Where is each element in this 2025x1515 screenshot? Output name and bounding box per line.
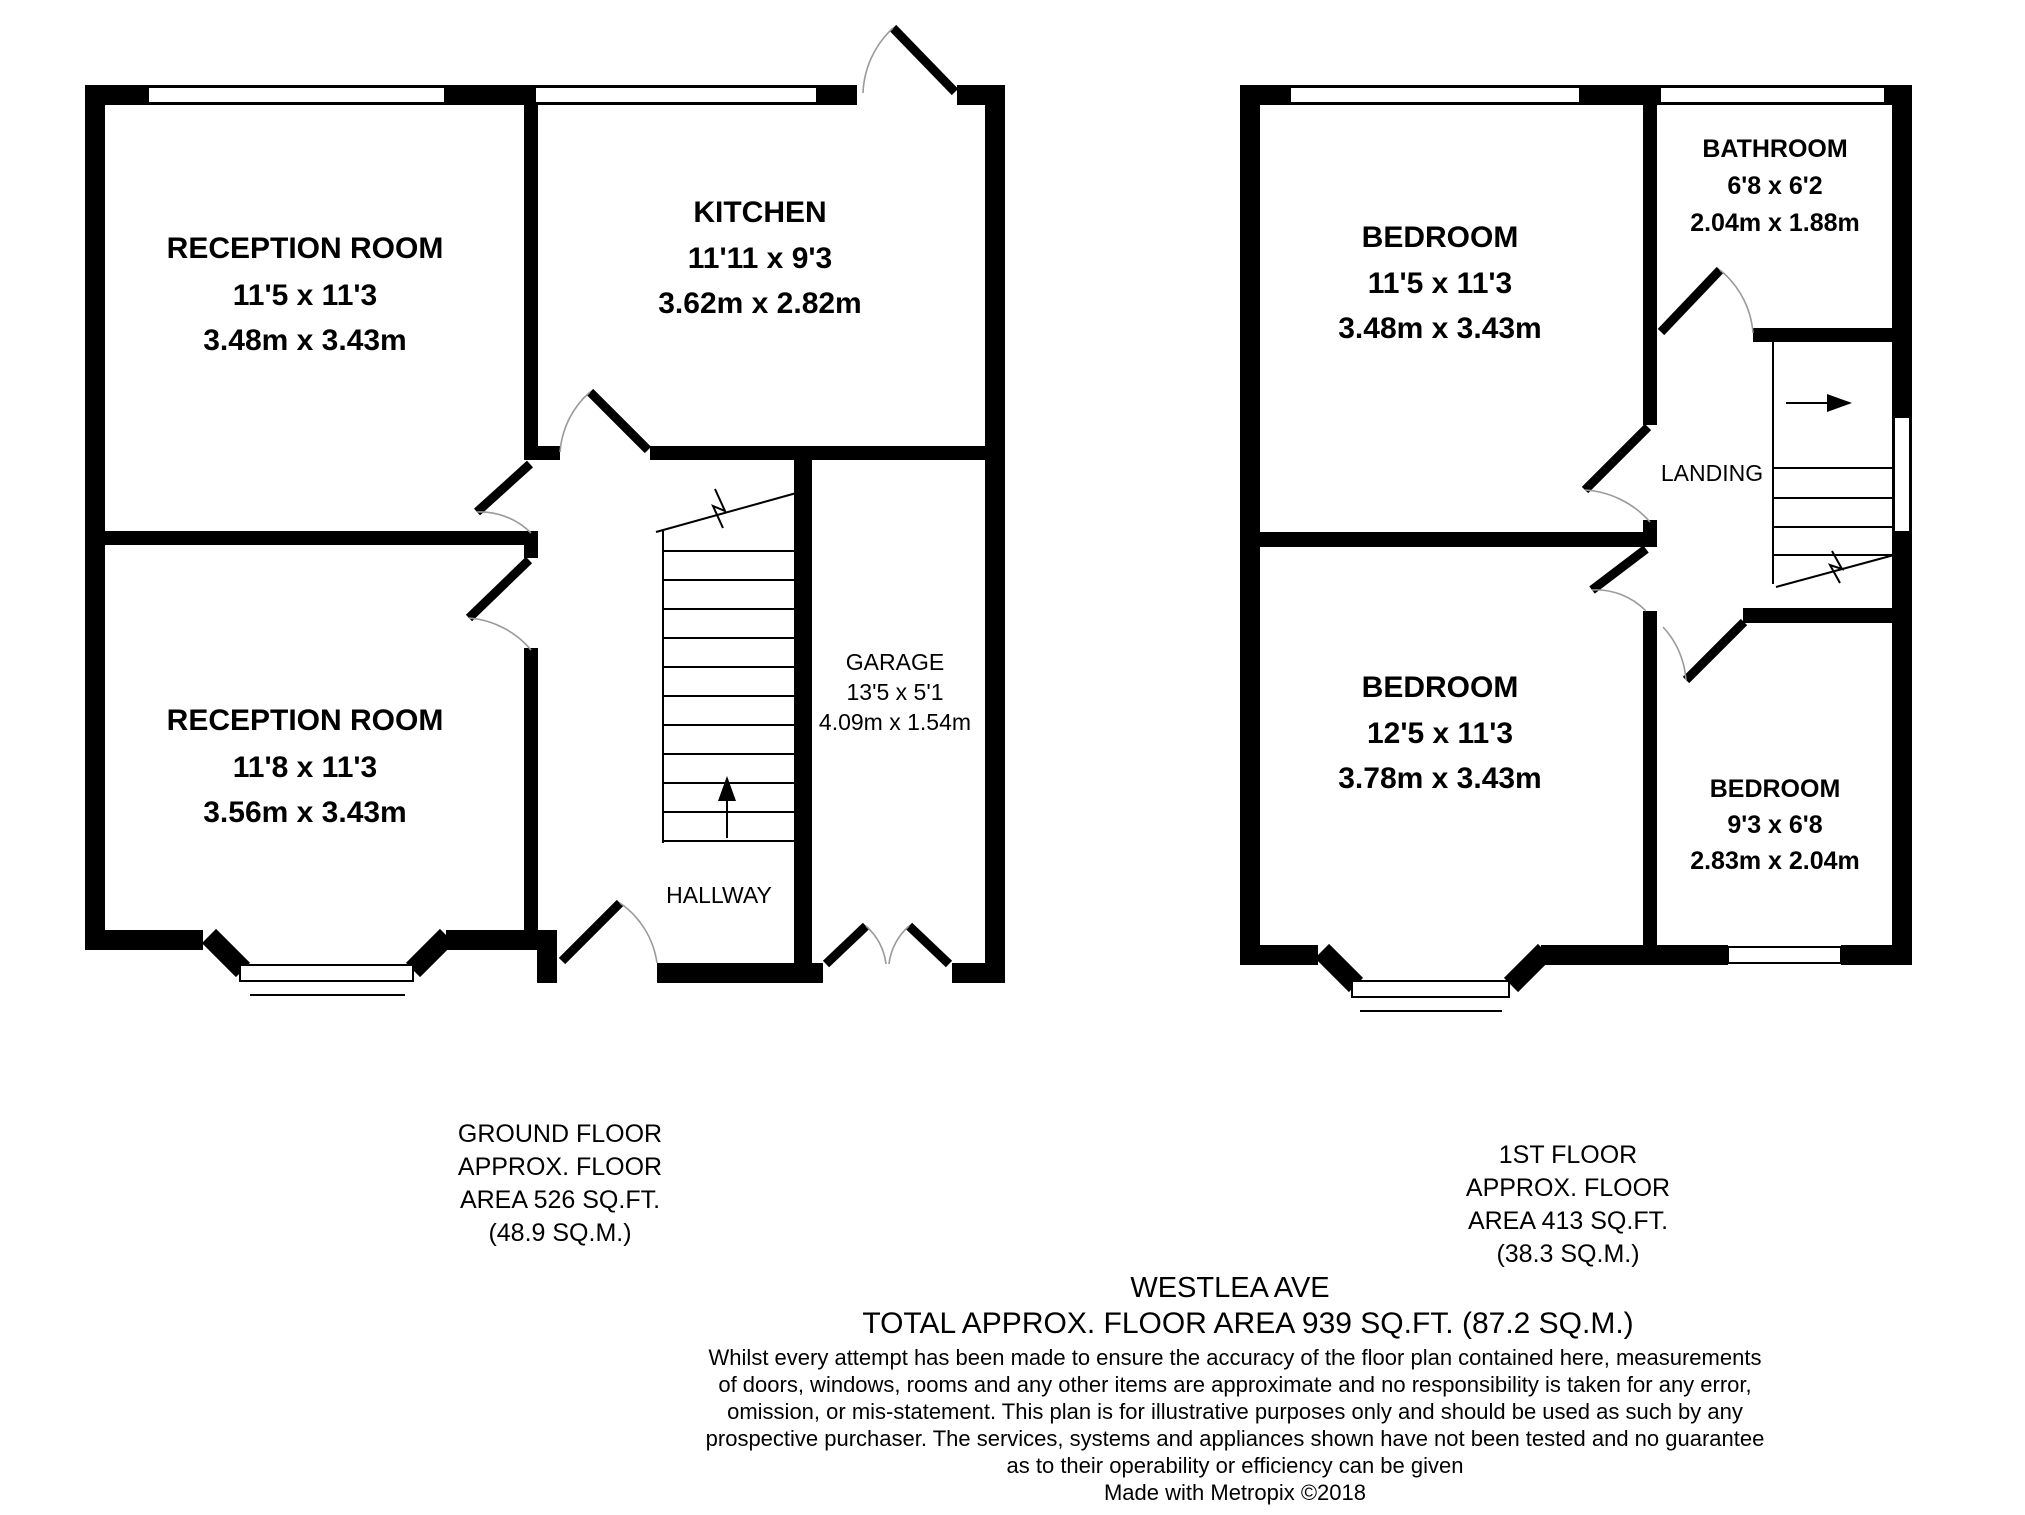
caption-line: 1ST FLOOR bbox=[1499, 1141, 1637, 1169]
room-name: BEDROOM bbox=[1362, 671, 1519, 704]
ground-floor-walls bbox=[85, 85, 1005, 983]
caption-line: AREA 413 SQ.FT. bbox=[1468, 1207, 1668, 1235]
window bbox=[535, 87, 817, 103]
garage-double-doors bbox=[826, 926, 949, 964]
room-label-landing: LANDING bbox=[1661, 460, 1763, 486]
room-label-garage: GARAGE 13'5 x 5'1 4.09m x 1.54m bbox=[819, 649, 971, 735]
room-name: BEDROOM bbox=[1710, 775, 1841, 803]
total-area-line: TOTAL APPROX. FLOOR AREA 939 SQ.FT. (87.… bbox=[862, 1307, 1633, 1340]
bedroom-2-door bbox=[1592, 549, 1646, 611]
room-name: RECEPTION ROOM bbox=[167, 704, 444, 737]
room-label-reception-1: RECEPTION ROOM 11'5 x 11'3 3.48m x 3.43m bbox=[167, 232, 444, 357]
floorplan-page: RECEPTION ROOM 11'5 x 11'3 3.48m x 3.43m… bbox=[0, 0, 2025, 1515]
kitchen-door bbox=[560, 392, 648, 452]
disclaimer-line: as to their operability or efficiency ca… bbox=[1007, 1453, 1464, 1478]
room-label-kitchen: KITCHEN 11'11 x 9'3 3.62m x 2.82m bbox=[658, 196, 861, 320]
disclaimer-line: prospective purchaser. The services, sys… bbox=[706, 1426, 1765, 1451]
stair-break-line bbox=[1776, 555, 1894, 587]
right-arrow-icon bbox=[1786, 394, 1852, 412]
bathroom-door bbox=[1661, 270, 1753, 333]
bay-window bbox=[1352, 981, 1509, 997]
room-name: RECEPTION ROOM bbox=[167, 232, 444, 265]
first-floor-stairs bbox=[1773, 342, 1894, 587]
up-arrow-icon bbox=[718, 776, 736, 838]
window bbox=[1728, 947, 1841, 963]
room-size-imperial: 11'8 x 11'3 bbox=[233, 751, 377, 784]
room-size-metric: 3.56m x 3.43m bbox=[203, 796, 406, 829]
caption-line: (48.9 SQ.M.) bbox=[488, 1219, 631, 1247]
room-size-metric: 3.48m x 3.43m bbox=[203, 324, 406, 357]
caption-line: (38.3 SQ.M.) bbox=[1496, 1240, 1639, 1268]
room-label-bedroom-1: BEDROOM 11'5 x 11'3 3.48m x 3.43m bbox=[1338, 221, 1541, 345]
room-name: BEDROOM bbox=[1362, 221, 1519, 254]
disclaimer-text: Whilst every attempt has been made to en… bbox=[706, 1345, 1765, 1505]
room-label-bedroom-2: BEDROOM 12'5 x 11'3 3.78m x 3.43m bbox=[1338, 671, 1541, 795]
ground-floor-plan: RECEPTION ROOM 11'5 x 11'3 3.48m x 3.43m… bbox=[85, 28, 1005, 995]
window bbox=[1660, 87, 1885, 103]
caption-line: AREA 526 SQ.FT. bbox=[460, 1186, 660, 1214]
room-size-imperial: 9'3 x 6'8 bbox=[1727, 811, 1822, 839]
address-title: WESTLEA AVE bbox=[1130, 1272, 1329, 1304]
room-size-metric: 3.78m x 3.43m bbox=[1338, 762, 1541, 795]
door-opening bbox=[857, 84, 957, 106]
bedroom-3-door bbox=[1663, 622, 1744, 680]
room-size-imperial: 11'11 x 9'3 bbox=[688, 242, 832, 275]
caption-line: APPROX. FLOOR bbox=[458, 1153, 662, 1181]
room-name: KITCHEN bbox=[693, 196, 826, 229]
window bbox=[1290, 87, 1580, 103]
front-door bbox=[562, 903, 657, 963]
room-label-bedroom-3: BEDROOM 9'3 x 6'8 2.83m x 2.04m bbox=[1690, 775, 1860, 875]
disclaimer-line: omission, or mis-statement. This plan is… bbox=[727, 1399, 1743, 1424]
stair-break-zigzag bbox=[713, 489, 725, 528]
bedroom-1-door bbox=[1585, 427, 1650, 522]
room-name: GARAGE bbox=[846, 649, 944, 675]
first-floor-plan: BEDROOM 11'5 x 11'3 3.48m x 3.43m BATHRO… bbox=[1240, 85, 1912, 1011]
first-floor-caption: 1ST FLOOR APPROX. FLOOR AREA 413 SQ.FT. … bbox=[1466, 1141, 1670, 1268]
ground-floor-stairs bbox=[656, 489, 800, 843]
room-size-metric: 3.48m x 3.43m bbox=[1338, 312, 1541, 345]
stair-break-line bbox=[656, 492, 800, 532]
room-size-imperial: 12'5 x 11'3 bbox=[1367, 717, 1513, 750]
reception-2-door bbox=[469, 560, 531, 650]
room-size-imperial: 11'5 x 11'3 bbox=[1368, 267, 1512, 300]
bay-window bbox=[240, 965, 413, 981]
reception-1-door bbox=[477, 464, 531, 533]
room-size-metric: 3.62m x 2.82m bbox=[658, 287, 861, 320]
disclaimer-line: of doors, windows, rooms and any other i… bbox=[718, 1372, 1751, 1397]
room-label-bathroom: BATHROOM 6'8 x 6'2 2.04m x 1.88m bbox=[1690, 135, 1860, 237]
room-size-metric: 2.04m x 1.88m bbox=[1690, 209, 1860, 237]
disclaimer-line: Whilst every attempt has been made to en… bbox=[709, 1345, 1762, 1370]
room-size-imperial: 11'5 x 11'3 bbox=[233, 279, 377, 312]
stair-window bbox=[1894, 417, 1910, 532]
caption-line: APPROX. FLOOR bbox=[1466, 1174, 1670, 1202]
room-size-imperial: 6'8 x 6'2 bbox=[1727, 172, 1822, 200]
room-name: BATHROOM bbox=[1702, 135, 1847, 163]
window bbox=[148, 87, 445, 103]
floorplan-drawing: RECEPTION ROOM 11'5 x 11'3 3.48m x 3.43m… bbox=[0, 0, 2025, 1515]
room-size-metric: 2.83m x 2.04m bbox=[1690, 847, 1860, 875]
metropix-credit: Made with Metropix ©2018 bbox=[1104, 1480, 1366, 1505]
caption-line: GROUND FLOOR bbox=[458, 1120, 662, 1148]
kitchen-exterior-door bbox=[863, 28, 955, 93]
ground-floor-caption: GROUND FLOOR APPROX. FLOOR AREA 526 SQ.F… bbox=[458, 1120, 662, 1247]
room-size-imperial: 13'5 x 5'1 bbox=[846, 679, 943, 705]
room-label-reception-2: RECEPTION ROOM 11'8 x 11'3 3.56m x 3.43m bbox=[167, 704, 444, 829]
room-label-hallway: HALLWAY bbox=[666, 882, 772, 908]
room-size-metric: 4.09m x 1.54m bbox=[819, 709, 971, 735]
